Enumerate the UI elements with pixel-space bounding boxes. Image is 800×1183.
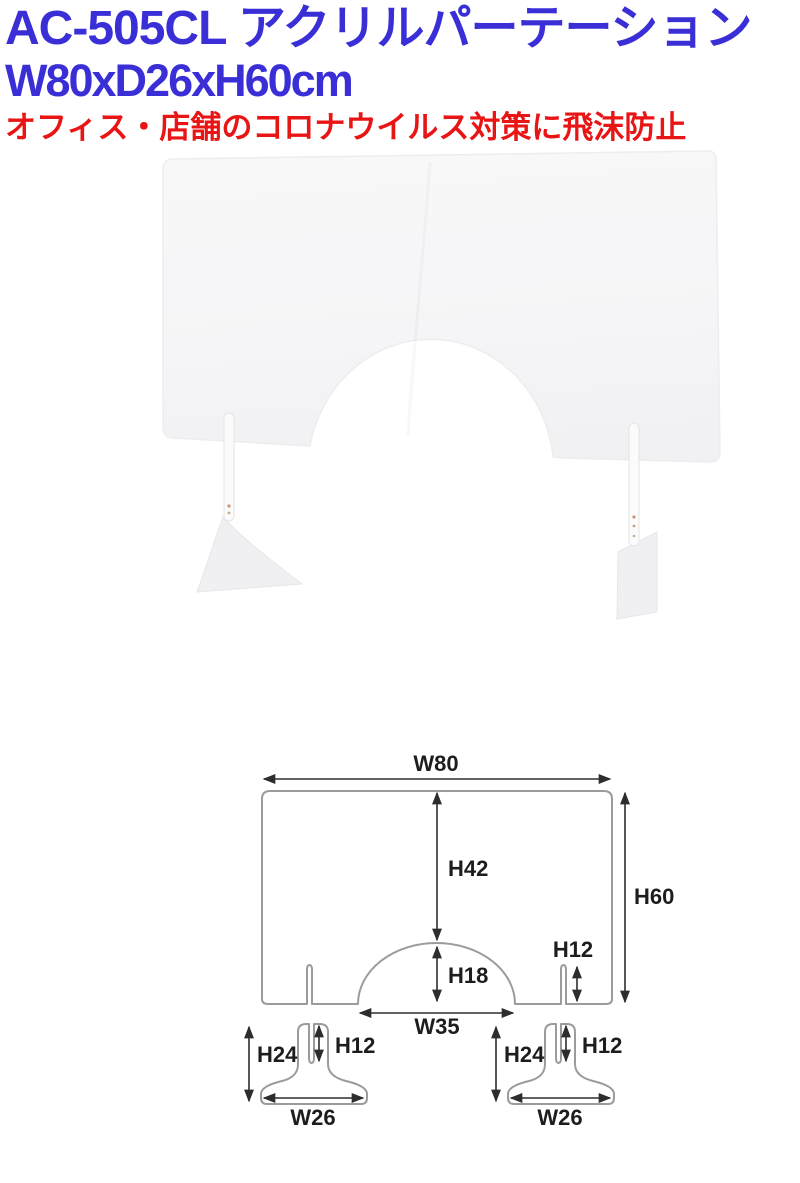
product-size-title: W80xD26xH60cm xyxy=(5,56,352,106)
product-title: AC-505CL アクリルパーテーション xyxy=(5,3,752,56)
dim-label-h12-panel: H12 xyxy=(553,937,593,962)
photo-right-foot-tab xyxy=(629,423,639,546)
diagram-foot-left: H24 H12 W26 xyxy=(249,1024,375,1130)
dim-label-h60: H60 xyxy=(634,884,674,909)
dim-label-w26-left: W26 xyxy=(290,1105,335,1130)
dim-label-w35: W35 xyxy=(414,1014,459,1039)
dim-label-h42: H42 xyxy=(448,856,488,881)
dim-label-h18: H18 xyxy=(448,963,488,988)
diagram-foot-right: H24 H12 W26 xyxy=(496,1024,622,1130)
product-listing-image: AC-505CL アクリルパーテーション W80xD26xH60cm オフィス・… xyxy=(0,0,800,1183)
dim-label-w26-right: W26 xyxy=(537,1105,582,1130)
dim-label-w80: W80 xyxy=(413,751,458,776)
dim-label-h24-left: H24 xyxy=(257,1042,298,1067)
photo-left-foot-blade xyxy=(197,517,302,592)
dim-label-h12-right: H12 xyxy=(582,1033,622,1058)
photo-tape-specks xyxy=(227,504,635,537)
photo-panel-shape xyxy=(163,151,720,462)
dim-label-h24-right: H24 xyxy=(504,1042,545,1067)
dim-label-h12-left: H12 xyxy=(335,1033,375,1058)
product-photo xyxy=(0,140,800,685)
dimension-diagram: W80 H42 H60 H18 W35 H12 H24 H12 W26 H24 … xyxy=(0,738,800,1140)
